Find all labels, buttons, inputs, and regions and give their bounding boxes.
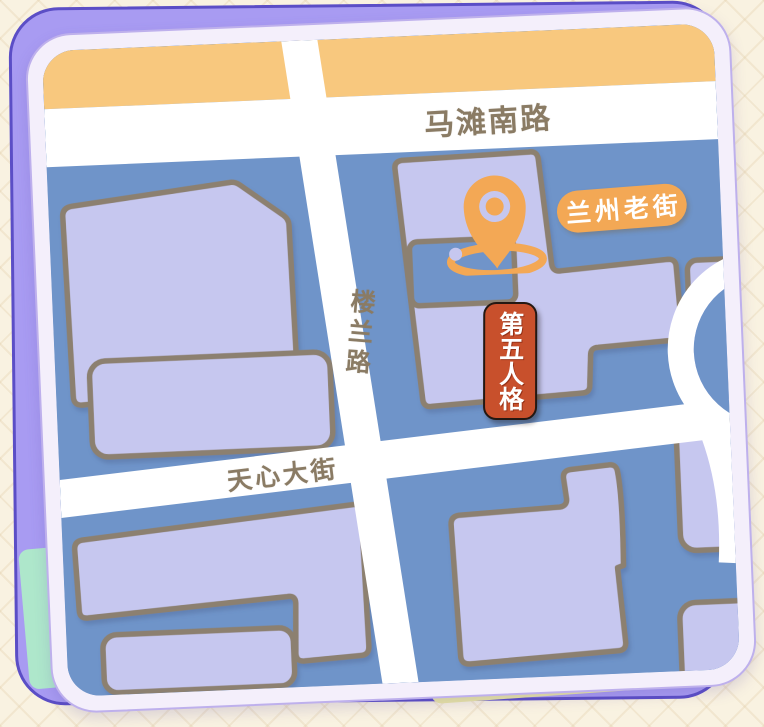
building-block — [89, 352, 334, 458]
identity-v-badge-label: 第五人格 — [497, 311, 524, 411]
building-block — [102, 627, 295, 693]
old-street-badge-label: 兰州老街 — [561, 186, 683, 231]
map-card: 马滩南路 楼兰路 天心大街 兰州老街 第五人格 — [24, 6, 758, 715]
map-poster-scene: 马滩南路 楼兰路 天心大街 兰州老街 第五人格 — [0, 0, 764, 727]
identity-v-badge: 第五人格 — [483, 302, 537, 420]
map-canvas: 马滩南路 楼兰路 天心大街 兰州老街 第五人格 — [42, 23, 740, 697]
basemap-svg — [42, 23, 740, 697]
location-pin-icon — [430, 150, 559, 277]
building-block — [679, 599, 740, 693]
